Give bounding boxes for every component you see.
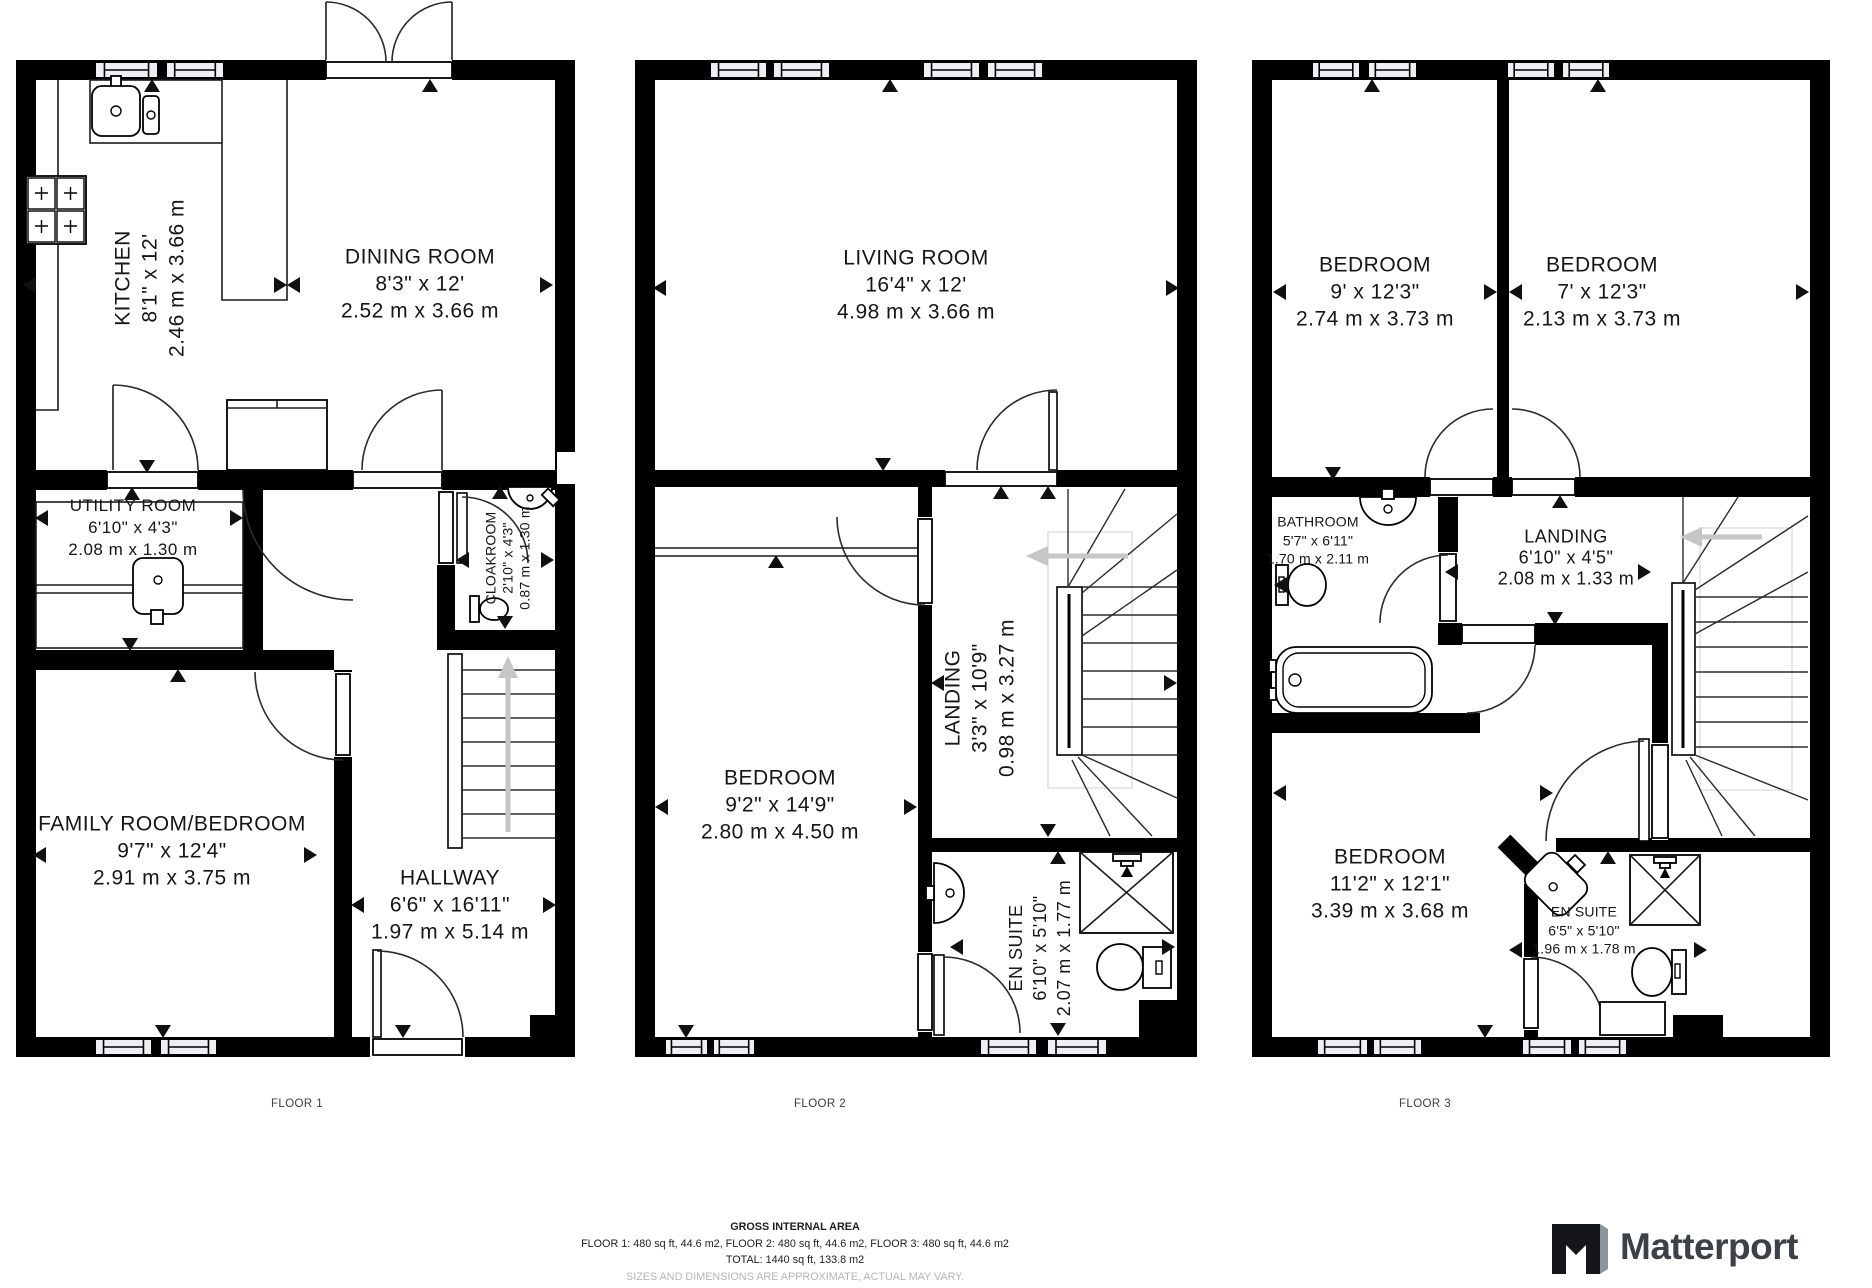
stair-up-arrow (498, 656, 518, 678)
gia-total-line: TOTAL: 1440 sq ft, 133.8 m2 (581, 1252, 1009, 1269)
room-label-bedroom-f2: BEDROOM9'2" x 14'9"2.80 m x 4.50 m (701, 765, 859, 846)
floor-1-stairs (448, 654, 555, 848)
room-label-family-room: FAMILY ROOM/BEDROOM9'7" x 12'4"2.91 m x … (38, 811, 306, 892)
room-label-bedroom-f3-left: BEDROOM9' x 12'3"2.74 m x 3.73 m (1296, 252, 1454, 333)
matterport-wordmark: Matterport (1620, 1226, 1798, 1268)
gia-floors-line: FLOOR 1: 480 sq ft, 44.6 m2, FLOOR 2: 48… (581, 1236, 1009, 1253)
utility-sink-icon (133, 558, 183, 624)
ensuite3-shower-icon (1630, 855, 1700, 925)
floor-3-stairs (1672, 497, 1808, 836)
floorplan-graphics (0, 0, 1872, 1288)
room-label-landing-f2: LANDING3'3" x 10'9"0.98 m x 3.27 m (940, 619, 1021, 777)
floor-2-caption: FLOOR 2 (794, 1098, 846, 1110)
ensuite2-toilet-icon (1097, 944, 1171, 990)
floorplan-page: KITCHEN8'1" x 12'2.46 m x 3.66 m DINING … (0, 0, 1872, 1288)
floor-2 (635, 60, 1197, 1057)
room-label-kitchen: KITCHEN8'1" x 12'2.46 m x 3.66 m (110, 199, 191, 357)
room-label-cloakroom: CLOAKROOM2'10" x 4'3"0.87 m x 1.30 m (483, 506, 534, 609)
ensuite3-shelf (1600, 1002, 1665, 1035)
room-label-bedroom-f3-right: BEDROOM7' x 12'3"2.13 m x 3.73 m (1523, 252, 1681, 333)
room-label-ensuite-f2: EN SUITE6'10" x 5'10"2.07 m x 1.77 m (1004, 880, 1076, 1017)
floor-3-caption: FLOOR 3 (1399, 1098, 1451, 1110)
room-label-ensuite-f3: EN SUITE6'5" x 5'10"1.96 m x 1.78 m (1532, 902, 1635, 958)
matterport-logo: Matterport (1549, 1218, 1798, 1276)
floor-1-caption: FLOOR 1 (271, 1098, 323, 1110)
floor-2-stairs (1026, 489, 1177, 836)
bathtub-icon (1269, 647, 1432, 713)
room-label-bathroom: BATHROOM5'7" x 6'11"1.70 m x 2.11 m (1267, 512, 1369, 568)
gross-internal-area-summary: GROSS INTERNAL AREA FLOOR 1: 480 sq ft, … (581, 1219, 1009, 1285)
room-label-utility-room: UTILITY ROOM6'10" x 4'3"2.08 m x 1.30 m (68, 495, 197, 561)
gia-title: GROSS INTERNAL AREA (581, 1219, 1009, 1236)
room-label-landing-f3: LANDING6'10" x 4'5"2.08 m x 1.33 m (1498, 527, 1635, 590)
ensuite3-toilet-icon (1632, 948, 1686, 996)
dining-cabinet (227, 400, 327, 470)
ensuite2-shower-icon (1080, 852, 1173, 933)
stair-direction-arrow (1026, 546, 1048, 566)
room-label-bedroom-f3-bottom: BEDROOM11'2" x 12'1"3.39 m x 3.68 m (1311, 844, 1469, 925)
room-label-hallway: HALLWAY6'6" x 16'11"1.97 m x 5.14 m (371, 865, 529, 946)
room-label-living-room: LIVING ROOM16'4" x 12'4.98 m x 3.66 m (837, 245, 995, 326)
hob-icon (26, 176, 86, 244)
room-label-dining-room: DINING ROOM8'3" x 12'2.52 m x 3.66 m (341, 244, 499, 325)
gia-disclaimer: SIZES AND DIMENSIONS ARE APPROXIMATE, AC… (581, 1269, 1009, 1286)
